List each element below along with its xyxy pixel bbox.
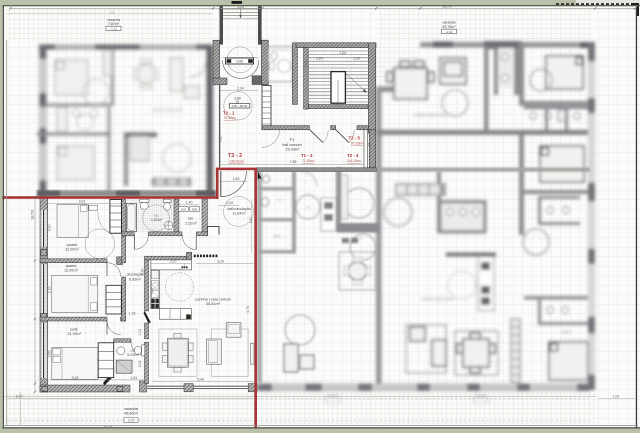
svg-text:2,20: 2,20 — [170, 259, 177, 263]
svg-text:quarto: quarto — [561, 330, 570, 334]
svg-text:1,15: 1,15 — [129, 311, 136, 315]
svg-text:130,91m²: 130,91m² — [229, 160, 245, 164]
svg-text:3,10: 3,10 — [47, 225, 51, 232]
svg-text:13,38: 13,38 — [104, 425, 113, 429]
svg-text:1,40: 1,40 — [186, 201, 193, 205]
svg-text:5,29m²: 5,29m² — [127, 353, 140, 357]
svg-text:1,00: 1,00 — [613, 395, 620, 399]
svg-text:45,86m²: 45,86m² — [124, 412, 139, 416]
svg-text:2,52m²: 2,52m² — [185, 221, 198, 225]
svg-text:3,50: 3,50 — [47, 351, 51, 358]
svg-text:varanda: varanda — [475, 394, 487, 398]
svg-text:i.s.: i.s. — [278, 198, 282, 202]
svg-text:cozinha | sala comum: cozinha | sala comum — [422, 297, 455, 301]
svg-text:T3 - 2: T3 - 2 — [228, 153, 242, 159]
svg-text:0,00→487,94: 0,00→487,94 — [232, 104, 248, 108]
svg-text:53,76m²: 53,76m² — [442, 25, 456, 29]
svg-text:3,10: 3,10 — [47, 287, 51, 294]
svg-text:36,81m²: 36,81m² — [206, 302, 221, 306]
svg-text:13,15m²: 13,15m² — [67, 332, 82, 336]
svg-text:4,25: 4,25 — [219, 136, 223, 143]
svg-text:suite: suite — [70, 327, 78, 331]
svg-text:T2 - 5: T2 - 5 — [349, 136, 361, 141]
svg-text:cozinha | sala comum: cozinha | sala comum — [195, 297, 232, 301]
svg-text:18,50: 18,50 — [30, 209, 35, 220]
svg-text:-1,12: -1,12 — [110, 27, 117, 31]
svg-text:varanda: varanda — [327, 394, 339, 398]
svg-text:6,83m²: 6,83m² — [129, 277, 142, 281]
svg-text:hall: hall — [306, 205, 311, 209]
svg-text:5,49: 5,49 — [197, 378, 204, 382]
svg-text:75,92m²: 75,92m² — [224, 116, 237, 120]
svg-text:T1 - 3: T1 - 3 — [301, 153, 313, 158]
svg-text:lav.: lav. — [188, 217, 194, 221]
svg-text:,90: ,90 — [368, 143, 372, 148]
svg-text:1,10: 1,10 — [138, 329, 142, 336]
svg-text:MLR: MLR — [181, 208, 186, 211]
svg-text:-0,32: -0,32 — [446, 30, 453, 34]
svg-text:2,43: 2,43 — [226, 201, 233, 205]
svg-text:T2 - 1: T2 - 1 — [223, 111, 235, 116]
svg-text:4,30: 4,30 — [140, 269, 144, 276]
svg-text:12,00m²: 12,00m² — [65, 248, 80, 252]
svg-text:18,70: 18,70 — [442, 3, 453, 8]
svg-text:i.s.: i.s. — [131, 348, 136, 352]
svg-text:cozinha | sala comum: cozinha | sala comum — [414, 113, 447, 117]
svg-text:12,05m²: 12,05m² — [64, 269, 79, 273]
svg-text:3,29: 3,29 — [217, 259, 224, 263]
svg-text:i.s.: i.s. — [154, 213, 159, 217]
svg-text:4,47: 4,47 — [249, 217, 253, 224]
svg-text:7,88: 7,88 — [290, 160, 297, 164]
svg-text:4,52m²: 4,52m² — [151, 218, 164, 222]
svg-text:1,24: 1,24 — [339, 51, 346, 55]
svg-text:,72: ,72 — [110, 11, 115, 15]
svg-text:MSR: MSR — [192, 208, 198, 211]
svg-text:1,20: 1,20 — [353, 56, 360, 60]
svg-text:1,81: 1,81 — [131, 376, 138, 380]
svg-text:2,00: 2,00 — [16, 394, 23, 398]
svg-text:desp.: desp. — [273, 234, 281, 238]
svg-text:3,45: 3,45 — [72, 376, 79, 380]
svg-text:118,19m²: 118,19m² — [347, 159, 362, 163]
svg-text:4,70: 4,70 — [246, 306, 250, 313]
svg-text:P1: P1 — [290, 138, 295, 142]
svg-text:quarto: quarto — [67, 243, 78, 247]
svg-text:-0,02: -0,02 — [127, 418, 134, 422]
svg-text:0,00: 0,00 — [236, 60, 243, 64]
svg-text:1,83: 1,83 — [233, 177, 240, 181]
svg-text:T2 - 4: T2 - 4 — [347, 153, 359, 158]
svg-text:hall comum: hall comum — [282, 143, 301, 147]
svg-text:hall/circulação: hall/circulação — [227, 207, 250, 211]
svg-text:varanda: varanda — [124, 407, 139, 411]
svg-text:71,83m²: 71,83m² — [302, 159, 315, 163]
svg-text:quarto | sala comum: quarto | sala comum — [153, 108, 184, 112]
svg-text:25,43m²: 25,43m² — [286, 148, 301, 152]
svg-text:2,05: 2,05 — [304, 61, 308, 68]
svg-text:i.s.: i.s. — [78, 113, 82, 117]
svg-text:3,05: 3,05 — [138, 361, 142, 368]
svg-text:11,84m²: 11,84m² — [232, 212, 246, 216]
svg-text:2,34: 2,34 — [237, 87, 244, 91]
svg-text:1,15: 1,15 — [150, 288, 154, 295]
svg-text:quarto: quarto — [66, 264, 77, 268]
svg-text:97,03m²: 97,03m² — [351, 141, 364, 145]
svg-text:7,87m²: 7,87m² — [108, 22, 120, 26]
svg-text:1,20: 1,20 — [316, 56, 323, 60]
svg-text:3,91: 3,91 — [79, 199, 86, 203]
